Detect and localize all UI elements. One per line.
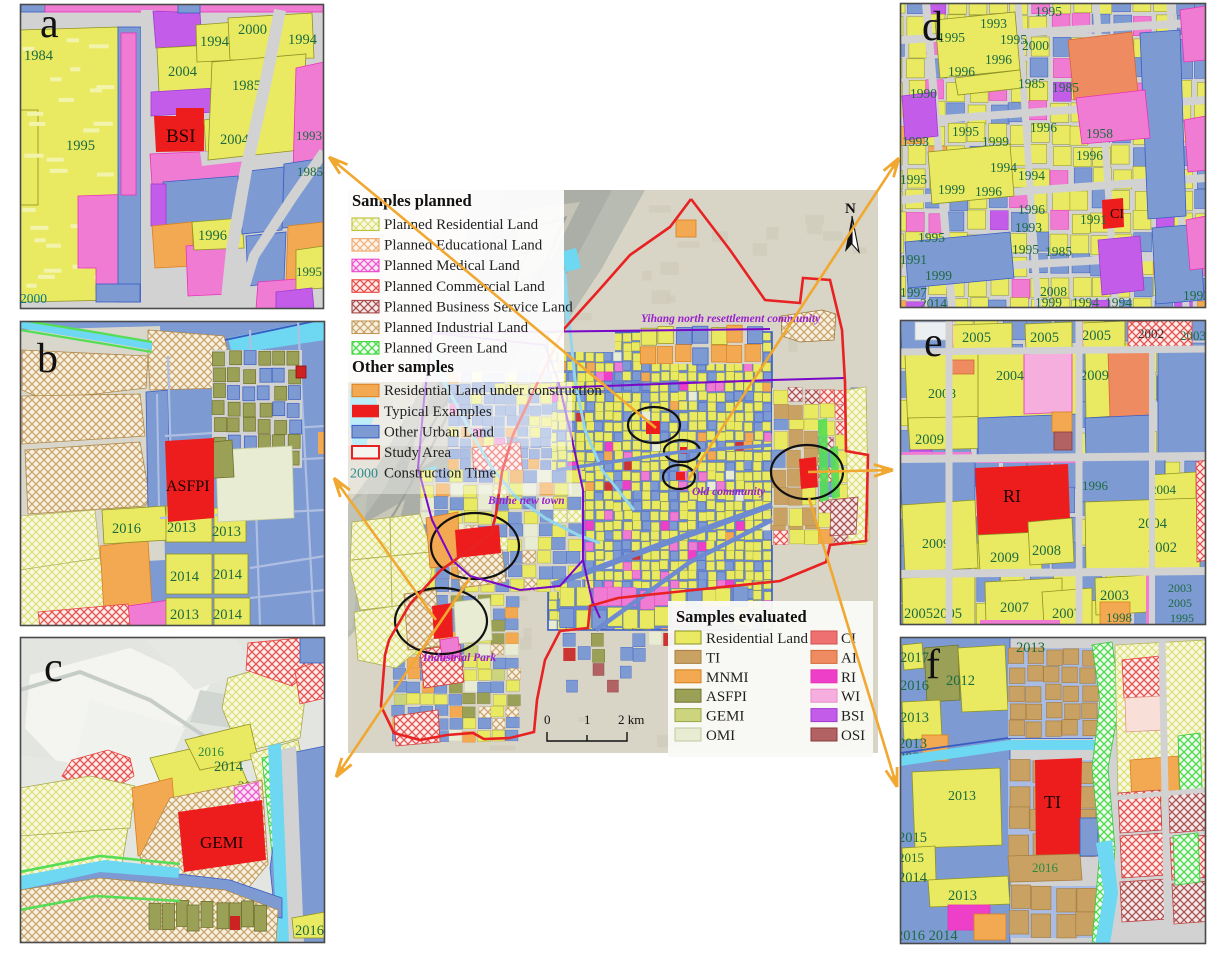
svg-text:CI: CI — [1110, 207, 1124, 222]
svg-text:RI: RI — [1003, 486, 1021, 506]
svg-text:2008: 2008 — [1032, 543, 1061, 559]
svg-text:2016: 2016 — [112, 521, 141, 537]
svg-text:2014: 2014 — [213, 567, 243, 583]
svg-text:c: c — [44, 645, 63, 691]
svg-text:2015: 2015 — [898, 850, 924, 865]
svg-text:1991: 1991 — [1080, 212, 1107, 227]
svg-text:2016 2014: 2016 2014 — [896, 928, 958, 944]
svg-text:1996: 1996 — [1030, 120, 1057, 135]
svg-text:1995: 1995 — [952, 124, 979, 139]
svg-text:2013: 2013 — [948, 789, 976, 804]
svg-text:2000: 2000 — [20, 291, 47, 306]
svg-text:2003: 2003 — [1180, 328, 1206, 343]
svg-text:1995: 1995 — [900, 172, 927, 187]
svg-text:Other Urban Land: Other Urban Land — [384, 424, 494, 440]
svg-text:1995: 1995 — [1035, 4, 1062, 19]
svg-text:2014: 2014 — [213, 607, 243, 623]
svg-text:1999: 1999 — [982, 134, 1009, 149]
svg-text:2004: 2004 — [168, 64, 198, 80]
svg-text:1990: 1990 — [910, 86, 937, 101]
svg-text:2000: 2000 — [1022, 38, 1049, 53]
svg-text:Industrial Park: Industrial Park — [422, 652, 496, 664]
svg-text:Planned Residential Land: Planned Residential Land — [384, 217, 539, 233]
svg-text:2013: 2013 — [170, 607, 199, 623]
svg-text:2003: 2003 — [1168, 581, 1192, 595]
svg-text:b: b — [37, 336, 58, 382]
svg-text:2004: 2004 — [996, 369, 1024, 384]
svg-text:1985: 1985 — [1052, 80, 1079, 95]
svg-text:2014: 2014 — [170, 569, 200, 585]
svg-text:1993: 1993 — [980, 16, 1007, 31]
svg-text:GEMI: GEMI — [706, 709, 744, 725]
svg-text:1996: 1996 — [198, 228, 227, 244]
svg-text:2012: 2012 — [946, 673, 975, 689]
svg-text:AI: AI — [841, 650, 857, 666]
svg-text:1994: 1994 — [200, 34, 230, 50]
svg-text:2009: 2009 — [1080, 368, 1109, 384]
svg-text:1999: 1999 — [925, 268, 952, 283]
svg-text:2016: 2016 — [198, 744, 225, 759]
svg-text:2002: 2002 — [1138, 326, 1164, 341]
svg-text:2015: 2015 — [898, 830, 927, 846]
svg-text:Typical Examples: Typical Examples — [384, 404, 492, 420]
svg-text:1994: 1994 — [990, 160, 1017, 175]
svg-text:Residential Land: Residential Land — [706, 631, 809, 647]
svg-text:TI: TI — [706, 650, 720, 666]
svg-text:1985: 1985 — [1045, 244, 1072, 259]
svg-text:20052005: 20052005 — [904, 606, 962, 622]
svg-text:1999: 1999 — [938, 182, 965, 197]
svg-text:Residential Land under constru: Residential Land under construction — [384, 383, 602, 399]
svg-text:BSI: BSI — [841, 709, 864, 725]
svg-text:1993: 1993 — [902, 134, 929, 149]
svg-text:2013: 2013 — [212, 524, 241, 540]
svg-text:1: 1 — [584, 712, 591, 727]
svg-text:1995: 1995 — [1012, 242, 1039, 257]
svg-text:TI: TI — [1044, 792, 1061, 812]
svg-text:BSI: BSI — [166, 126, 196, 147]
svg-text:1996: 1996 — [948, 64, 975, 79]
svg-text:Other samples: Other samples — [352, 357, 454, 376]
svg-text:1985: 1985 — [232, 78, 261, 94]
svg-text:Planned Industrial Land: Planned Industrial Land — [384, 320, 529, 336]
svg-text:2013: 2013 — [167, 520, 196, 536]
svg-text:2000: 2000 — [350, 467, 378, 482]
svg-text:2013: 2013 — [1016, 640, 1045, 656]
svg-text:1996: 1996 — [1018, 202, 1045, 217]
svg-text:1993: 1993 — [296, 128, 322, 143]
svg-text:2 km: 2 km — [618, 712, 644, 727]
svg-text:1998: 1998 — [1106, 610, 1132, 625]
svg-text:2007: 2007 — [1000, 600, 1029, 616]
svg-text:1985: 1985 — [1018, 76, 1045, 91]
svg-text:1996: 1996 — [975, 184, 1002, 199]
svg-text:GEMI: GEMI — [200, 833, 244, 852]
svg-text:0: 0 — [544, 712, 551, 727]
svg-text:Planned Green Land: Planned Green Land — [384, 341, 508, 357]
svg-text:ASFPI: ASFPI — [166, 478, 210, 495]
svg-text:2014: 2014 — [214, 759, 244, 775]
svg-text:1958: 1958 — [1086, 126, 1113, 141]
svg-text:2005: 2005 — [1082, 328, 1111, 344]
svg-text:Binhe new town: Binhe new town — [487, 495, 565, 507]
svg-text:2016: 2016 — [295, 923, 324, 939]
svg-text:1996: 1996 — [985, 52, 1012, 67]
svg-text:2016: 2016 — [1032, 860, 1059, 875]
svg-text:Study Area: Study Area — [384, 445, 451, 461]
svg-text:2005: 2005 — [962, 330, 991, 346]
svg-text:2014: 2014 — [898, 870, 928, 886]
svg-text:1995: 1995 — [296, 264, 322, 279]
svg-text:1985: 1985 — [297, 164, 323, 179]
svg-text:2009: 2009 — [915, 432, 944, 448]
svg-text:2017: 2017 — [900, 650, 929, 666]
svg-text:N: N — [845, 201, 856, 217]
svg-text:MNMI: MNMI — [706, 670, 749, 686]
svg-text:f: f — [926, 642, 940, 688]
svg-text:e: e — [924, 320, 943, 366]
svg-text:Old community: Old community — [692, 486, 766, 498]
svg-text:1994: 1994 — [288, 32, 318, 48]
svg-text:2009: 2009 — [990, 550, 1019, 566]
svg-text:1991: 1991 — [900, 252, 927, 267]
svg-text:Samples evaluated: Samples evaluated — [676, 607, 807, 626]
svg-text:WI: WI — [841, 689, 860, 705]
svg-text:1996: 1996 — [1076, 148, 1103, 163]
svg-text:OSI: OSI — [841, 728, 865, 744]
svg-text:OMI: OMI — [706, 728, 735, 744]
svg-text:2000: 2000 — [238, 22, 267, 38]
svg-text:2013: 2013 — [948, 888, 977, 904]
svg-text:Samples planned: Samples planned — [352, 191, 472, 210]
svg-text:ASFPI: ASFPI — [706, 689, 747, 705]
svg-text:2016: 2016 — [900, 678, 929, 694]
svg-text:2003: 2003 — [1100, 588, 1129, 604]
svg-text:2005: 2005 — [1168, 596, 1192, 610]
svg-text:RI: RI — [841, 670, 856, 686]
svg-text:Planned Commercial Land: Planned Commercial Land — [384, 279, 545, 295]
svg-text:2005: 2005 — [1030, 330, 1059, 346]
svg-text:1994: 1994 — [1018, 168, 1045, 183]
svg-text:Construction Time: Construction Time — [384, 466, 496, 482]
svg-text:Planned Educational Land: Planned Educational Land — [384, 238, 543, 254]
svg-text:1995: 1995 — [1170, 611, 1194, 625]
svg-text:a: a — [40, 1, 59, 47]
svg-text:1995: 1995 — [66, 138, 95, 154]
svg-text:1984: 1984 — [24, 48, 54, 64]
svg-text:2013: 2013 — [900, 710, 929, 726]
svg-text:1995: 1995 — [918, 230, 945, 245]
svg-text:Planned Business Service Land: Planned Business Service Land — [384, 299, 573, 315]
svg-text:2014: 2014 — [920, 296, 947, 311]
svg-text:d: d — [922, 4, 943, 50]
svg-text:1993: 1993 — [1015, 220, 1042, 235]
svg-text:1996: 1996 — [1082, 478, 1109, 493]
